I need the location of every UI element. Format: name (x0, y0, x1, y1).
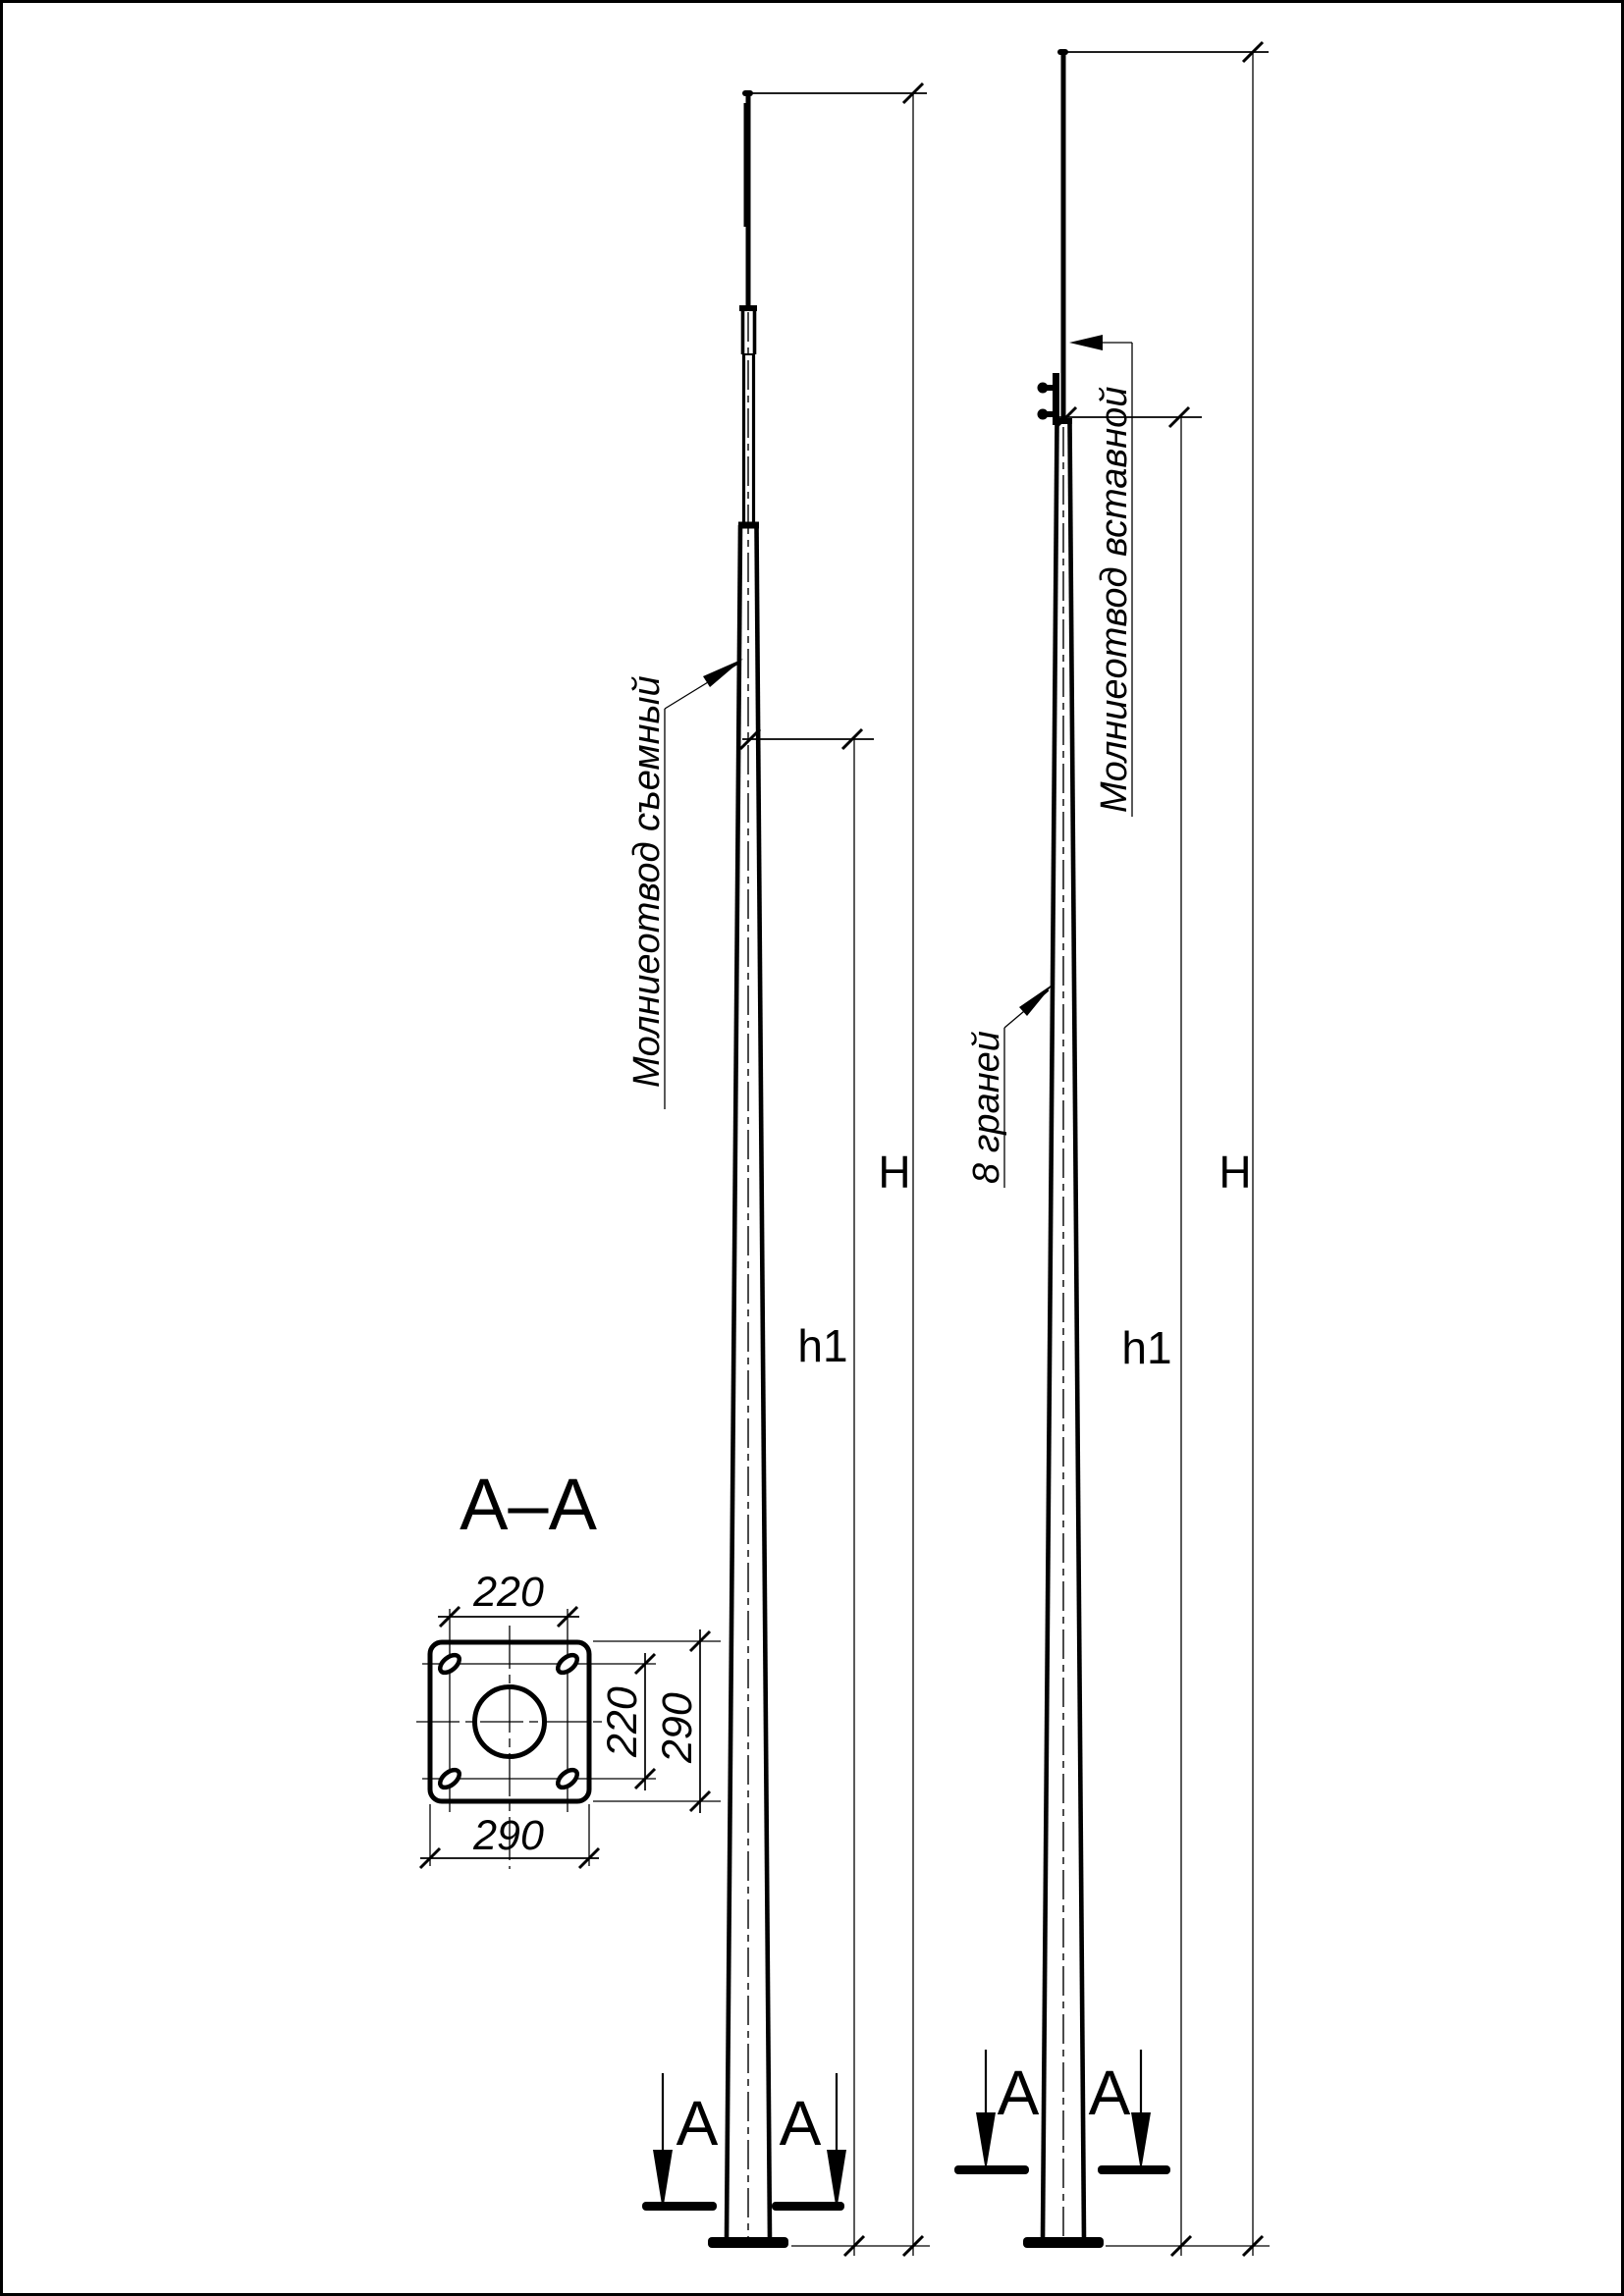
section-letter: А (1089, 2057, 1131, 2128)
cut-plane-bar (642, 2202, 717, 2211)
dim-h1-label: h1 (1121, 1322, 1171, 1373)
dim-290-right-label: 290 (654, 1692, 701, 1764)
section-letter: А (998, 2057, 1040, 2128)
section-letter: А (677, 2088, 719, 2159)
section-title: А–А (460, 1464, 598, 1545)
cut-plane-bar (954, 2165, 1029, 2174)
cut-plane-bar (1098, 2165, 1170, 2174)
technical-drawing: H h1 Молниеотвод съемный А (0, 0, 1624, 2296)
dim-H-label: H (1218, 1147, 1251, 1198)
drawing-sheet: H h1 Молниеотвод съемный А (0, 0, 1624, 2296)
page-border (2, 2, 1623, 2295)
facets-label: 8 граней (966, 1031, 1007, 1184)
dim-H-label: H (878, 1147, 910, 1198)
cut-plane-bar (772, 2202, 844, 2211)
base-plate (708, 2237, 788, 2248)
base-plate (1023, 2237, 1104, 2248)
dim-290-bottom-label: 290 (472, 1812, 544, 1859)
dim-h1-label: h1 (797, 1320, 847, 1371)
bolt-head (1038, 383, 1049, 394)
insert-rod-label: Молниеотвод вставной (1094, 387, 1135, 813)
dim-220-right-label: 220 (599, 1686, 646, 1758)
section-letter: А (780, 2088, 822, 2159)
dim-220-top-label: 220 (472, 1569, 544, 1616)
removable-rod-label: Молниеотвод съемный (626, 675, 668, 1088)
bolt-head (1038, 409, 1049, 420)
